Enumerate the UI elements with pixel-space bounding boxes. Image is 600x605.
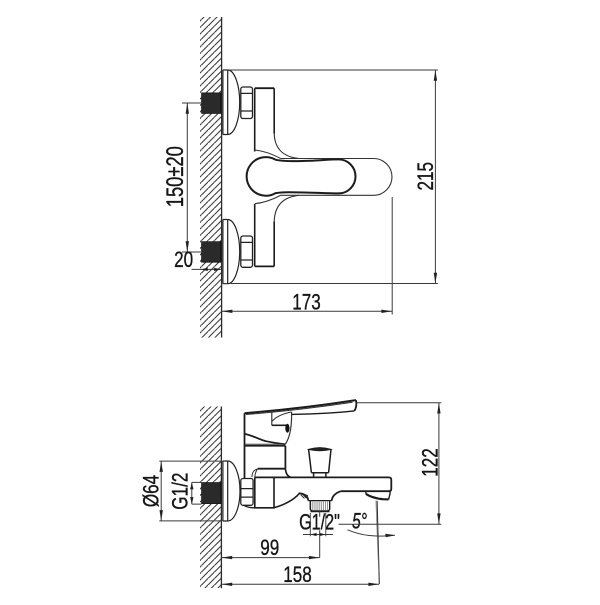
svg-text:20: 20 bbox=[174, 248, 193, 273]
svg-text:150±20: 150±20 bbox=[160, 146, 188, 207]
svg-text:215: 215 bbox=[414, 162, 439, 191]
svg-text:99: 99 bbox=[260, 536, 279, 561]
svg-text:Ø64: Ø64 bbox=[139, 475, 164, 507]
svg-text:5°: 5° bbox=[352, 509, 367, 534]
svg-text:G1/2": G1/2" bbox=[299, 510, 340, 535]
svg-text:G1/2: G1/2 bbox=[168, 473, 193, 510]
svg-text:122: 122 bbox=[418, 448, 443, 477]
